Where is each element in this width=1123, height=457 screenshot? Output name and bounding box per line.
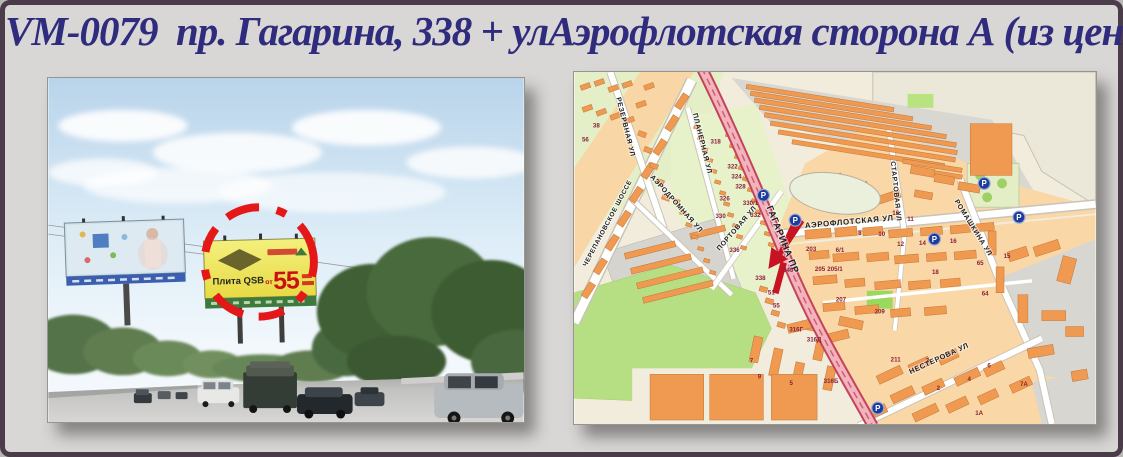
svg-text:P: P (932, 235, 938, 244)
house-number: 7А (1020, 381, 1028, 388)
house-number: 11 (907, 216, 914, 223)
parking-icon: P (928, 233, 940, 245)
house-number: 316Д (807, 336, 822, 343)
house-number: 65 (977, 260, 984, 267)
billboard-price: 55 (273, 267, 301, 295)
house-number: 15 (1004, 253, 1011, 260)
billboard-product-text: Плита QSB (212, 275, 264, 287)
house-number: 4 (968, 376, 972, 383)
house-number: 340 (783, 267, 794, 274)
street-photo: Плита QSB от 55 (48, 78, 524, 422)
house-number: 12 (897, 241, 904, 248)
house-number: 51 (768, 290, 775, 297)
house-number: 5 (790, 380, 794, 387)
svg-text:P: P (875, 404, 881, 413)
house-number: 10 (878, 231, 885, 238)
svg-text:P: P (793, 216, 799, 225)
house-number: 211 (891, 356, 902, 363)
map-panel: PPPPPP РЕЗЕРВНАЯ УЛЧЕРЕПАНОВСКОЕ ШОССЕПЛ… (573, 71, 1097, 425)
truck (243, 361, 297, 413)
house-number: 56 (582, 137, 589, 144)
house-number: 328 (735, 183, 746, 190)
house-number: 207 (836, 297, 847, 304)
svg-text:P: P (982, 179, 988, 188)
svg-text:P: P (761, 191, 767, 200)
photo-panel: Плита QSB от 55 (47, 77, 525, 423)
house-number: 330 (716, 213, 727, 220)
house-number: 16 (950, 238, 957, 245)
house-number: 209 (875, 309, 886, 316)
house-number: 6 (987, 362, 991, 369)
house-number: 7 (750, 357, 754, 364)
house-number: 324 (731, 173, 742, 180)
house-number: 336 (729, 247, 740, 254)
house-number: 318 (711, 139, 722, 146)
house-number: 3 (926, 357, 930, 364)
house-number: 205/1 (827, 266, 843, 273)
house-number: 9 (758, 373, 762, 380)
location-map: PPPPPP РЕЗЕРВНАЯ УЛЧЕРЕПАНОВСКОЕ ШОССЕПЛ… (574, 72, 1096, 424)
svg-text:P: P (1016, 213, 1022, 222)
house-number: 18 (932, 269, 939, 276)
house-number: 316Г (789, 327, 803, 334)
parking-icon: P (872, 402, 884, 414)
house-number: 6/1 (836, 247, 845, 254)
parking-icon: P (1013, 211, 1025, 223)
house-number: 13 (892, 210, 899, 217)
house-number: 1А (975, 410, 983, 417)
house-number: 64 (982, 291, 989, 298)
card-title: VM-0079 пр. Гагарина, 338 + улАэрофлотск… (5, 7, 1118, 55)
house-number: 2 (937, 385, 941, 392)
house-number: 338 (755, 275, 766, 282)
house-number: 38 (593, 123, 600, 130)
house-number: 55 (773, 303, 780, 310)
house-number: 330/1 (743, 200, 759, 207)
parking-icon: P (789, 214, 801, 226)
house-number: 8 (858, 230, 862, 237)
house-number: 326 (719, 195, 730, 202)
house-number: 332 (750, 212, 761, 219)
house-number: 316Б (824, 378, 839, 385)
white-car (198, 380, 240, 407)
house-number: 322 (727, 163, 738, 170)
house-number: 203 (806, 246, 817, 253)
house-number: 205 (815, 266, 826, 273)
parking-icon: P (978, 177, 990, 189)
location-card: VM-0079 пр. Гагарина, 338 + улАэрофлотск… (0, 0, 1123, 457)
parking-icon: P (757, 189, 769, 201)
house-number: 14 (919, 240, 926, 247)
